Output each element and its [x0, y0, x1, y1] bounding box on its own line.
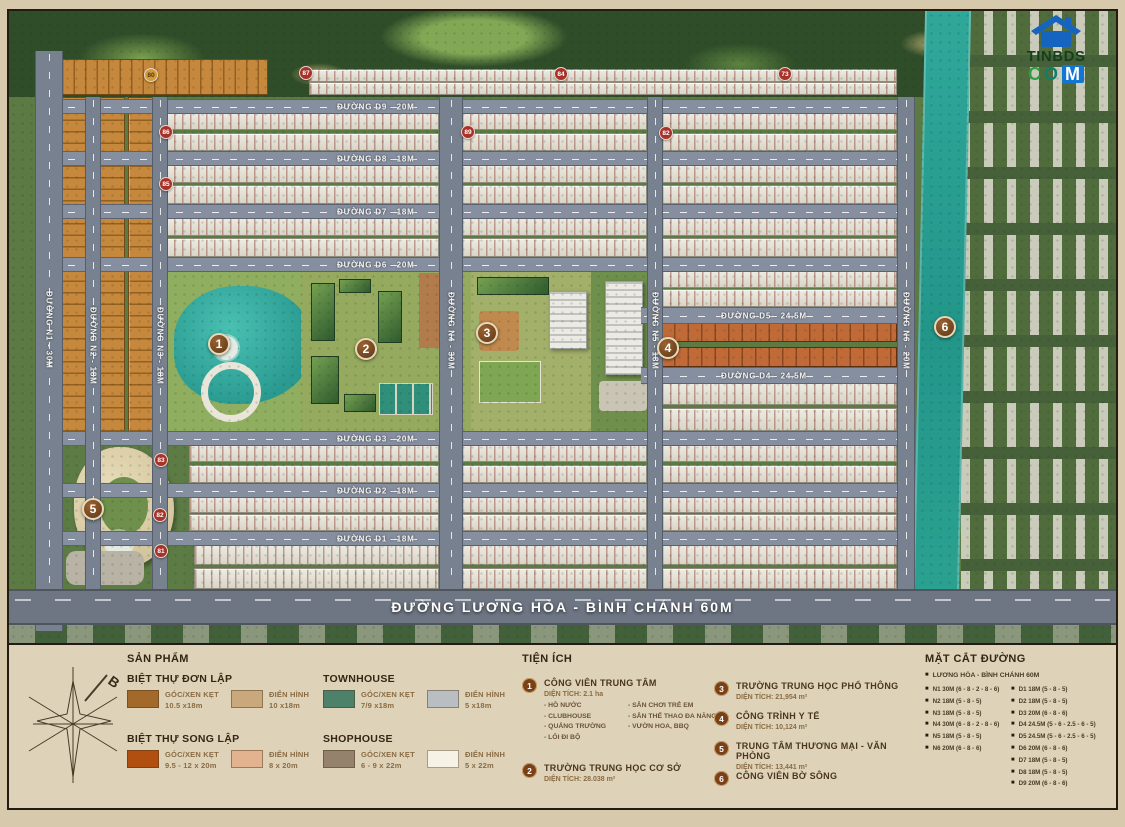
- road-label: ĐƯỜNG D5 - 24.5M: [721, 311, 807, 320]
- block-badge: 82: [153, 508, 167, 522]
- road-label: ĐƯỜNG N1 - 30M: [45, 291, 54, 369]
- legend-item: GÓC/XEN KẸT6 - 9 x 22m: [323, 750, 415, 770]
- group-name: TOWNHOUSE: [323, 673, 519, 685]
- road-label: ĐƯỜNG D2 - 18M: [337, 486, 415, 495]
- amenity-marker-5[interactable]: 5: [82, 498, 104, 520]
- color-swatch: [323, 750, 355, 768]
- road-label: ĐƯỜNG D9 - 20M: [337, 102, 415, 111]
- color-swatch: [427, 690, 459, 708]
- school-zone: [471, 270, 591, 431]
- list-item: D7 18M (5 - 8 - 5): [1011, 755, 1115, 767]
- list-item: D9 20M (6 - 8 - 6): [1011, 778, 1115, 790]
- townhouse-strip: [661, 544, 897, 589]
- list-item: D8 18M (5 - 8 - 5): [1011, 767, 1115, 779]
- block-badge: 80: [144, 68, 158, 82]
- road-d6: ĐƯỜNG D6 - 20M: [47, 257, 913, 272]
- road-label: ĐƯỜNG D1 - 18M: [337, 534, 415, 543]
- road-d5: ĐƯỜNG D5 - 24.5M: [641, 307, 913, 324]
- amenity-details: - HỒ NƯỚC- CLUBHOUSE- QUẢNG TRƯỜNG- LỐI …: [544, 701, 618, 743]
- road-d8: ĐƯỜNG D8 - 18M: [47, 151, 913, 166]
- amenity-item: 5 TRUNG TÂM THƯƠNG MẠI - VĂN PHÒNG DIỆN …: [714, 741, 918, 771]
- block-badge: 73: [778, 67, 792, 81]
- legend-products: SẢN PHẨM BIỆT THỰ ĐƠN LẬP GÓC/XEN KẸT10.…: [127, 653, 519, 803]
- road-label: ĐƯỜNG D7 - 18M: [337, 207, 415, 216]
- road-label: ĐƯỜNG D4 - 24.5M: [721, 371, 807, 380]
- block-badge: 89: [461, 125, 475, 139]
- townhouse-strip: [661, 164, 897, 204]
- amenity-name: TRƯỜNG TRUNG HỌC PHỔ THÔNG: [736, 681, 898, 691]
- amenity-area: DIỆN TÍCH: 13,441 m²: [736, 764, 918, 771]
- block-badge: 87: [299, 66, 313, 80]
- list-item: D6 20M (6 - 8 - 6): [1011, 743, 1115, 755]
- sections-col1: N1 30M (6 - 8 - 2 - 8 - 6)N2 18M (5 - 8 …: [925, 684, 1009, 755]
- townhouse-strip: [461, 544, 647, 589]
- amenity-marker-4[interactable]: 4: [657, 337, 679, 359]
- compass-rose: B: [23, 659, 123, 791]
- group-name: BIỆT THỰ SONG LẬP: [127, 733, 323, 745]
- amenity-item: 2 TRƯỜNG TRUNG HỌC CƠ SỞ DIỆN TÍCH: 28.0…: [522, 763, 712, 783]
- block-badge: 86: [159, 125, 173, 139]
- amenity-area: DIỆN TÍCH: 2.1 ha: [544, 691, 738, 698]
- townhouse-strip: [661, 496, 897, 531]
- townhouse-strip: [461, 164, 647, 204]
- school-building: [477, 277, 549, 295]
- amenity-item: 1 CÔNG VIÊN TRUNG TÂM DIỆN TÍCH: 2.1 ha …: [522, 678, 712, 743]
- amenity-area: DIỆN TÍCH: 10,124 m²: [736, 724, 820, 731]
- townhouse-strip: [309, 69, 897, 95]
- list-item: N3 18M (5 - 8 - 5): [925, 708, 1009, 720]
- east-bank-housing: [961, 11, 1116, 589]
- road-label: ĐƯỜNG N6 - 20M: [902, 292, 911, 370]
- list-item: - LỐI ĐI BỘ: [544, 733, 618, 744]
- list-item: N6 20M (6 - 8 - 6): [925, 743, 1009, 755]
- townhouse-strip: [165, 112, 439, 151]
- amenity-area: DIỆN TÍCH: 28.038 m²: [544, 776, 681, 783]
- brand-logo[interactable]: TINBDS COM: [1002, 15, 1110, 83]
- list-item: D4 24.5M (5 - 6 - 2.5 - 6 - 5): [1011, 719, 1115, 731]
- road-n6: ĐƯỜNG N6 - 20M: [897, 97, 915, 589]
- road-d3: ĐƯỜNG D3 - 20M: [47, 431, 913, 446]
- brand-line2: COM: [1002, 65, 1110, 83]
- list-item: - CLUBHOUSE: [544, 712, 618, 723]
- park-ring-feature: [201, 362, 261, 422]
- legend-item: ĐIỂN HÌNH8 x 20m: [231, 750, 323, 770]
- road-label: ĐƯỜNG LƯƠNG HÒA - BÌNH CHÁNH 60M: [391, 599, 733, 615]
- products-title: SẢN PHẨM: [127, 653, 519, 665]
- svg-text:B: B: [105, 672, 122, 691]
- legend-item: ĐIỂN HÌNH5 x18m: [427, 690, 519, 710]
- amenity-marker-2[interactable]: 2: [355, 338, 377, 360]
- tennis-courts: [379, 383, 433, 415]
- townhouse-strip: [189, 496, 439, 531]
- amenity-number: 3: [714, 681, 729, 696]
- list-item: - SÂN CHƠI TRẺ EM: [628, 701, 738, 712]
- townhouse-strip: [661, 270, 897, 307]
- color-swatch: [127, 690, 159, 708]
- list-item: D3 20M (6 - 8 - 6): [1011, 708, 1115, 720]
- road-label: ĐƯỜNG N3 - 18M: [156, 307, 165, 385]
- amenity-number: 6: [714, 771, 729, 786]
- road-label: ĐƯỜNG N2 - 18M: [89, 307, 98, 385]
- list-item: D5 24.5M (5 - 6 - 2.5 - 6 - 5): [1011, 731, 1115, 743]
- road-label: ĐƯỜNG N5 - 18M: [651, 292, 660, 370]
- amenity-name: CÔNG TRÌNH Y TẾ: [736, 711, 820, 721]
- site-plan-map: ĐƯỜNG LƯƠNG HÒA - BÌNH CHÁNH 60M TINBDS …: [9, 11, 1116, 645]
- list-item: N4 30M (6 - 8 - 2 - 8 - 6): [925, 719, 1009, 731]
- sections-title: MẶT CẮT ĐƯỜNG: [925, 653, 1115, 665]
- south-greenery: [9, 625, 1116, 645]
- block-badge: 84: [554, 67, 568, 81]
- townhouse-strip: [461, 496, 647, 531]
- amenity-area: DIỆN TÍCH: 21,954 m²: [736, 694, 898, 701]
- road-d4: ĐƯỜNG D4 - 24.5M: [641, 367, 913, 384]
- townhouse-strip: [461, 217, 647, 257]
- road-d2: ĐƯỜNG D2 - 18M: [47, 483, 913, 498]
- legend-amenities: TIỆN ÍCH 1 CÔNG VIÊN TRUNG TÂM DIỆN TÍCH…: [514, 653, 918, 803]
- townhouse-strip: [461, 112, 647, 151]
- road-label: ĐƯỜNG D6 - 20M: [337, 260, 415, 269]
- amenity-item: 3 TRƯỜNG TRUNG HỌC PHỔ THÔNG DIỆN TÍCH: …: [714, 681, 918, 701]
- section-item: LƯƠNG HÒA - BÌNH CHÁNH 60M: [925, 672, 1115, 679]
- townhouse-strip: [661, 217, 897, 257]
- color-swatch: [231, 750, 263, 768]
- legend-item: ĐIỂN HÌNH10 x18m: [231, 690, 323, 710]
- townhouse-strip: [661, 382, 897, 431]
- townhouse-strip: [194, 544, 439, 589]
- amenity-marker-1[interactable]: 1: [208, 333, 230, 355]
- color-swatch: [231, 690, 263, 708]
- amenity-name: CÔNG VIÊN BỜ SÔNG: [736, 771, 837, 781]
- commercial-plaza: [66, 551, 144, 585]
- townhouse-strip: [661, 112, 897, 151]
- road-luong-hoa-binh-chanh: ĐƯỜNG LƯƠNG HÒA - BÌNH CHÁNH 60M: [9, 589, 1116, 625]
- block-badge: 85: [159, 177, 173, 191]
- amenity-name: TRƯỜNG TRUNG HỌC CƠ SỞ: [544, 763, 681, 773]
- road-n1: ĐƯỜNG N1 - 30M: [35, 51, 63, 631]
- legend-item: GÓC/XEN KẸT10.5 x18m: [127, 690, 219, 710]
- road-d1: ĐƯỜNG D1 - 18M: [47, 531, 913, 546]
- clubhouse-building: [311, 356, 339, 404]
- road-d9: ĐƯỜNG D9 - 20M: [47, 99, 913, 114]
- legend-road-sections: MẶT CẮT ĐƯỜNG LƯƠNG HÒA - BÌNH CHÁNH 60M…: [925, 653, 1115, 803]
- amenity-marker-3[interactable]: 3: [476, 322, 498, 344]
- list-item: D2 18M (5 - 8 - 5): [1011, 696, 1115, 708]
- road-d7: ĐƯỜNG D7 - 18M: [47, 204, 913, 219]
- block-badge: 81: [154, 544, 168, 558]
- townhouse-strip: [165, 217, 439, 257]
- townhouse-strip: [661, 444, 897, 483]
- road-label: ĐƯỜNG D8 - 18M: [337, 154, 415, 163]
- color-swatch: [323, 690, 355, 708]
- road-label: ĐƯỜNG D3 - 20M: [337, 434, 415, 443]
- townhouse-strip: [189, 444, 439, 483]
- legend-item: ĐIỂN HÌNH5 x 22m: [427, 750, 519, 770]
- masterplan-poster: ĐƯỜNG LƯƠNG HÒA - BÌNH CHÁNH 60M TINBDS …: [7, 9, 1118, 810]
- clubhouse-building: [339, 279, 371, 293]
- townhouse-strip: [461, 444, 647, 483]
- product-group: BIỆT THỰ SONG LẬP GÓC/XEN KẸT9.5 - 12 x …: [127, 733, 323, 770]
- block-badge: 83: [154, 453, 168, 467]
- list-item: D1 18M (5 - 8 - 5): [1011, 684, 1115, 696]
- road-n4: ĐƯỜNG N4 - 30M: [439, 97, 463, 589]
- amenity-marker-6[interactable]: 6: [934, 316, 956, 338]
- road-label: ĐƯỜNG N4 - 30M: [447, 292, 456, 370]
- amenity-name: CÔNG VIÊN TRUNG TÂM: [544, 678, 738, 688]
- list-item: - HỒ NƯỚC: [544, 701, 618, 712]
- amenity-number: 1: [522, 678, 537, 693]
- amenity-number: 5: [714, 741, 729, 756]
- medical-zone: [591, 270, 653, 431]
- amenity-number: 2: [522, 763, 537, 778]
- amenity-name: TRUNG TÂM THƯƠNG MẠI - VĂN PHÒNG: [736, 741, 918, 761]
- block-badge: 82: [659, 126, 673, 140]
- sports-field: [479, 361, 541, 403]
- product-group: SHOPHOUSE GÓC/XEN KẸT6 - 9 x 22m ĐIỂN HÌ…: [323, 733, 519, 770]
- color-swatch: [127, 750, 159, 768]
- product-group: TOWNHOUSE GÓC/XEN KẸT7/9 x18m ĐIỂN HÌNH5…: [323, 673, 519, 710]
- brand-line1: TINBDS: [1002, 49, 1110, 64]
- legend-item: GÓC/XEN KẸT9.5 - 12 x 20m: [127, 750, 219, 770]
- amenities-title: TIỆN ÍCH: [522, 653, 918, 665]
- group-name: BIỆT THỰ ĐƠN LẬP: [127, 673, 323, 685]
- legend-item: GÓC/XEN KẸT7/9 x18m: [323, 690, 415, 710]
- shophouse-strip: [661, 322, 897, 367]
- group-name: SHOPHOUSE: [323, 733, 519, 745]
- clubhouse-building: [378, 291, 402, 343]
- amenity-number: 4: [714, 711, 729, 726]
- sections-col2: D1 18M (5 - 8 - 5)D2 18M (5 - 8 - 5)D3 2…: [1011, 684, 1115, 790]
- product-group: BIỆT THỰ ĐƠN LẬP GÓC/XEN KẸT10.5 x18m ĐI…: [127, 673, 323, 710]
- legend-panel: B SẢN PHẨM BIỆT THỰ ĐƠN LẬP GÓC/XEN KẸT1…: [9, 645, 1116, 808]
- list-item: N5 18M (5 - 8 - 5): [925, 731, 1009, 743]
- townhouse-strip: [165, 164, 439, 204]
- villa-strip: [51, 59, 268, 95]
- amenity-item: 6 CÔNG VIÊN BỜ SÔNG: [714, 771, 918, 786]
- clubhouse-building: [311, 283, 335, 341]
- color-swatch: [427, 750, 459, 768]
- list-item: - QUẢNG TRƯỜNG: [544, 722, 618, 733]
- list-item: N1 30M (6 - 8 - 2 - 8 - 6): [925, 684, 1009, 696]
- medical-yard: [599, 381, 647, 411]
- clubhouse-building: [344, 394, 376, 412]
- school-building: [549, 291, 587, 349]
- amenity-item: 4 CÔNG TRÌNH Y TẾ DIỆN TÍCH: 10,124 m²: [714, 711, 918, 731]
- list-item: N2 18M (5 - 8 - 5): [925, 696, 1009, 708]
- medical-building: [605, 281, 643, 375]
